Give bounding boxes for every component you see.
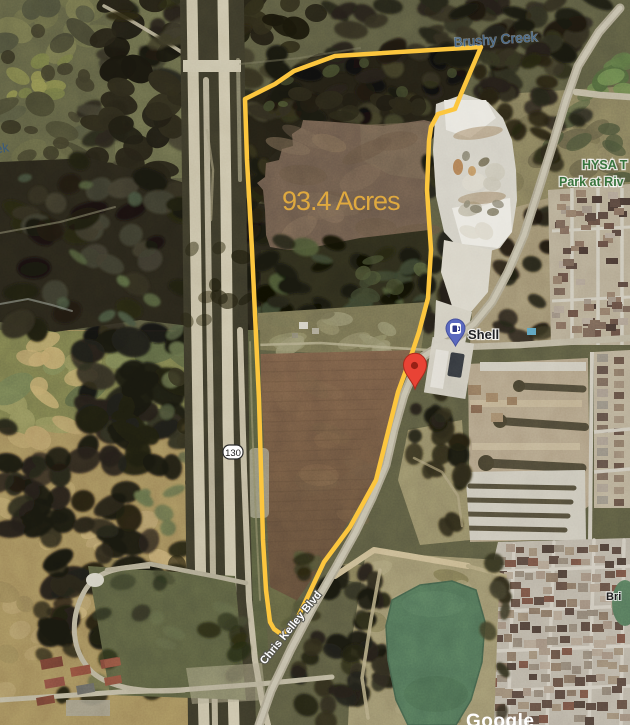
svg-text:Google: Google bbox=[466, 711, 534, 725]
svg-text:Park at Riv: Park at Riv bbox=[559, 175, 624, 189]
svg-text:93.4 Acres: 93.4 Acres bbox=[282, 186, 400, 216]
svg-text:130: 130 bbox=[225, 448, 241, 459]
svg-text:HYSA T: HYSA T bbox=[582, 158, 628, 172]
svg-text:Shell: Shell bbox=[468, 327, 499, 342]
svg-text:Bri: Bri bbox=[606, 591, 621, 603]
